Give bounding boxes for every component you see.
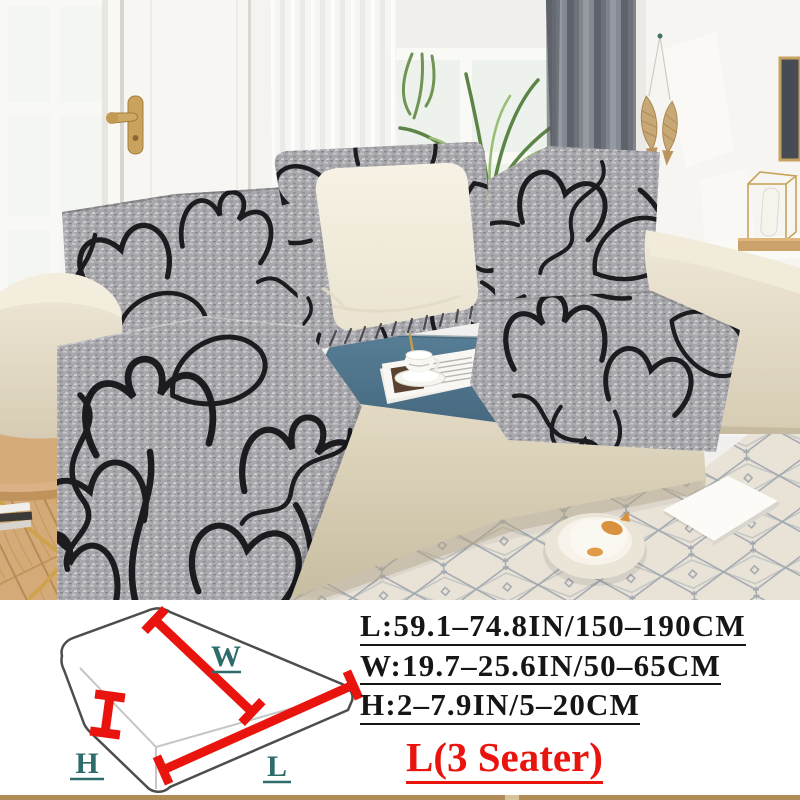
size-spec-length: L:59.1–74.8IN/150–190CM — [360, 610, 746, 646]
size-spec-width: W:19.7–25.6IN/50–65CM — [360, 650, 721, 686]
magazine-stack — [0, 502, 32, 531]
dim-label-l: L — [267, 750, 287, 783]
size-panel: W L H L:59.1–74.8IN/150–190CM W:19.7–25.… — [0, 600, 800, 795]
size-specs: L:59.1–74.8IN/150–190CM W:19.7–25.6IN/50… — [360, 610, 798, 784]
dim-label-h: H — [75, 747, 98, 780]
next-image-edge — [0, 795, 800, 800]
variant-label: L(3 Seater) — [406, 737, 603, 784]
product-image: W L H L:59.1–74.8IN/150–190CM W:19.7–25.… — [0, 0, 800, 800]
strip-notch — [505, 795, 519, 800]
living-room-photo — [0, 0, 800, 600]
picture-frame — [780, 58, 800, 160]
size-diagram: W L H — [0, 600, 370, 795]
dim-label-w: W — [211, 640, 241, 673]
size-spec-height: H:2–7.9IN/5–20CM — [360, 689, 640, 725]
